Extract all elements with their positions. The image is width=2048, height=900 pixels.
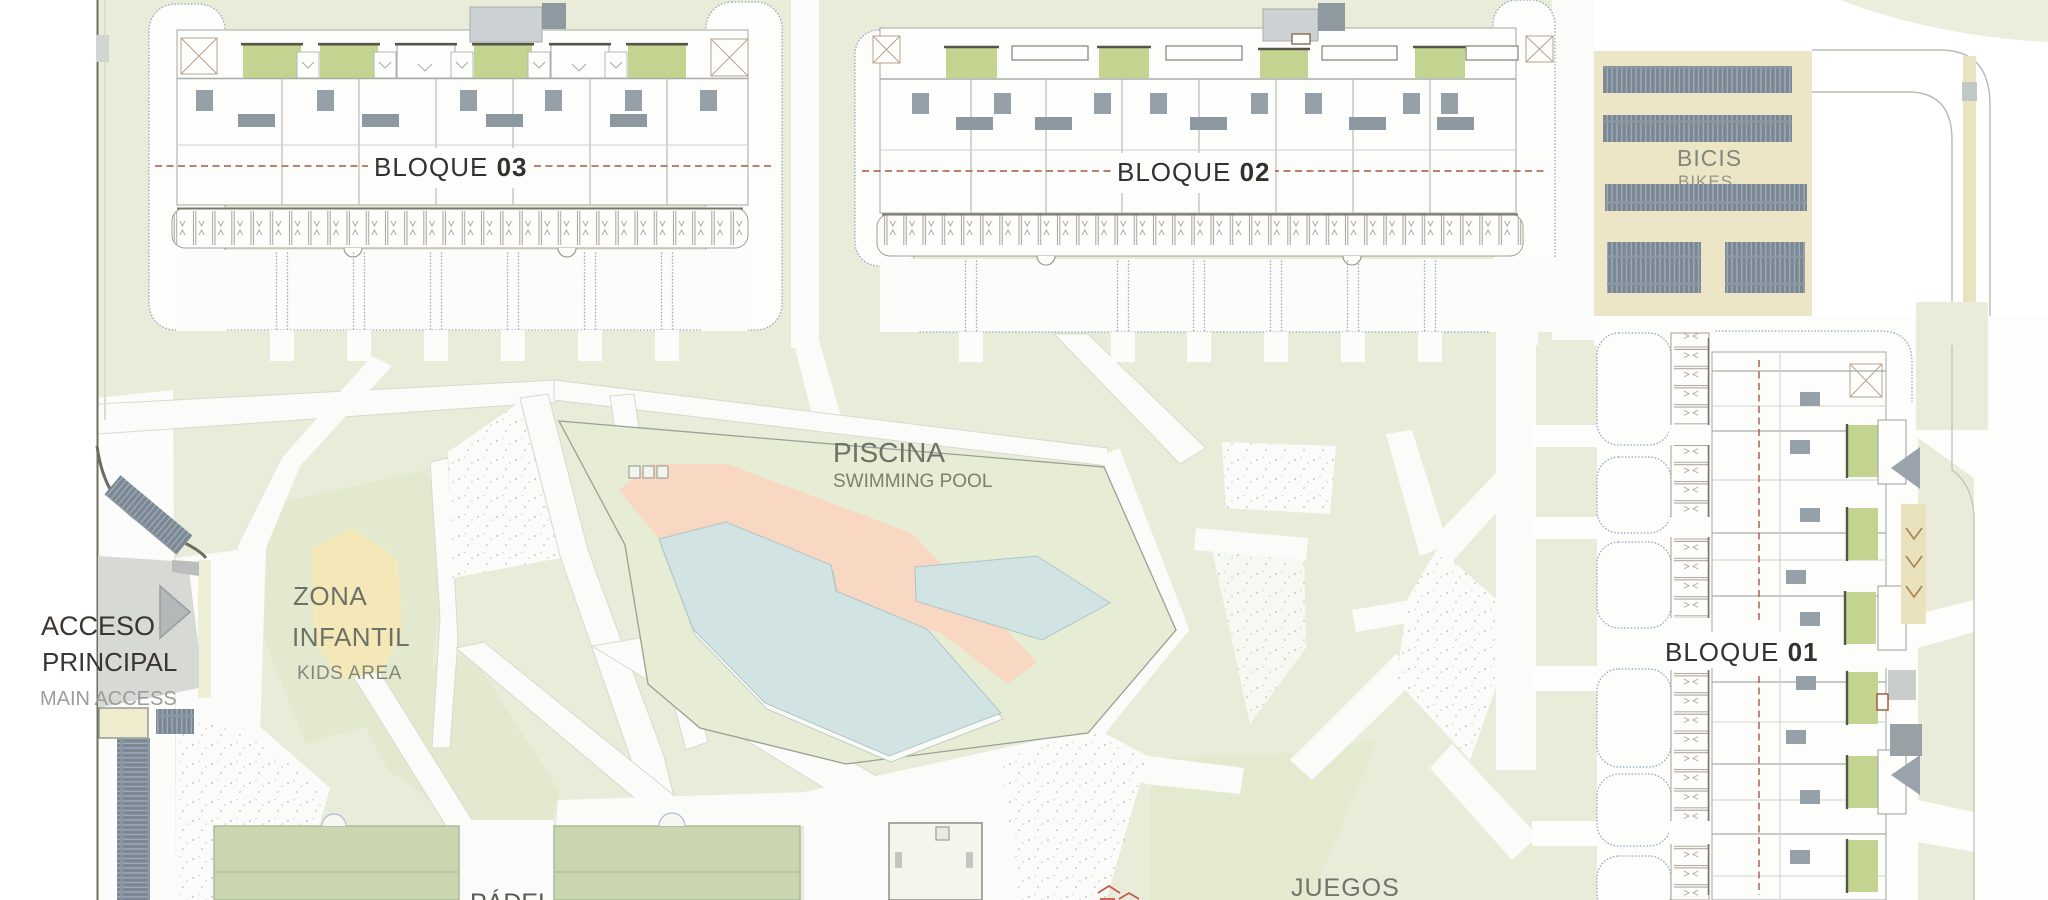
svg-text:INFANTIL: INFANTIL <box>292 622 410 652</box>
svg-text:MAIN ACCESS: MAIN ACCESS <box>40 688 177 710</box>
svg-text:SWIMMING POOL: SWIMMING POOL <box>833 471 992 492</box>
svg-text:KIDS AREA: KIDS AREA <box>297 663 402 684</box>
svg-text:BLOQUE 02: BLOQUE 02 <box>1117 157 1271 187</box>
svg-text:BLOQUE 03: BLOQUE 03 <box>374 152 528 182</box>
svg-text:ZONA: ZONA <box>293 581 367 611</box>
svg-text:BLOQUE 01: BLOQUE 01 <box>1665 637 1819 667</box>
svg-text:BICIS: BICIS <box>1677 145 1742 171</box>
svg-text:ACCESO: ACCESO <box>41 611 155 641</box>
svg-text:PÁDEL: PÁDEL <box>470 888 552 900</box>
svg-text:PRINCIPAL: PRINCIPAL <box>42 647 177 677</box>
svg-text:PISCINA: PISCINA <box>833 437 945 468</box>
svg-text:JUEGOS: JUEGOS <box>1291 874 1400 900</box>
